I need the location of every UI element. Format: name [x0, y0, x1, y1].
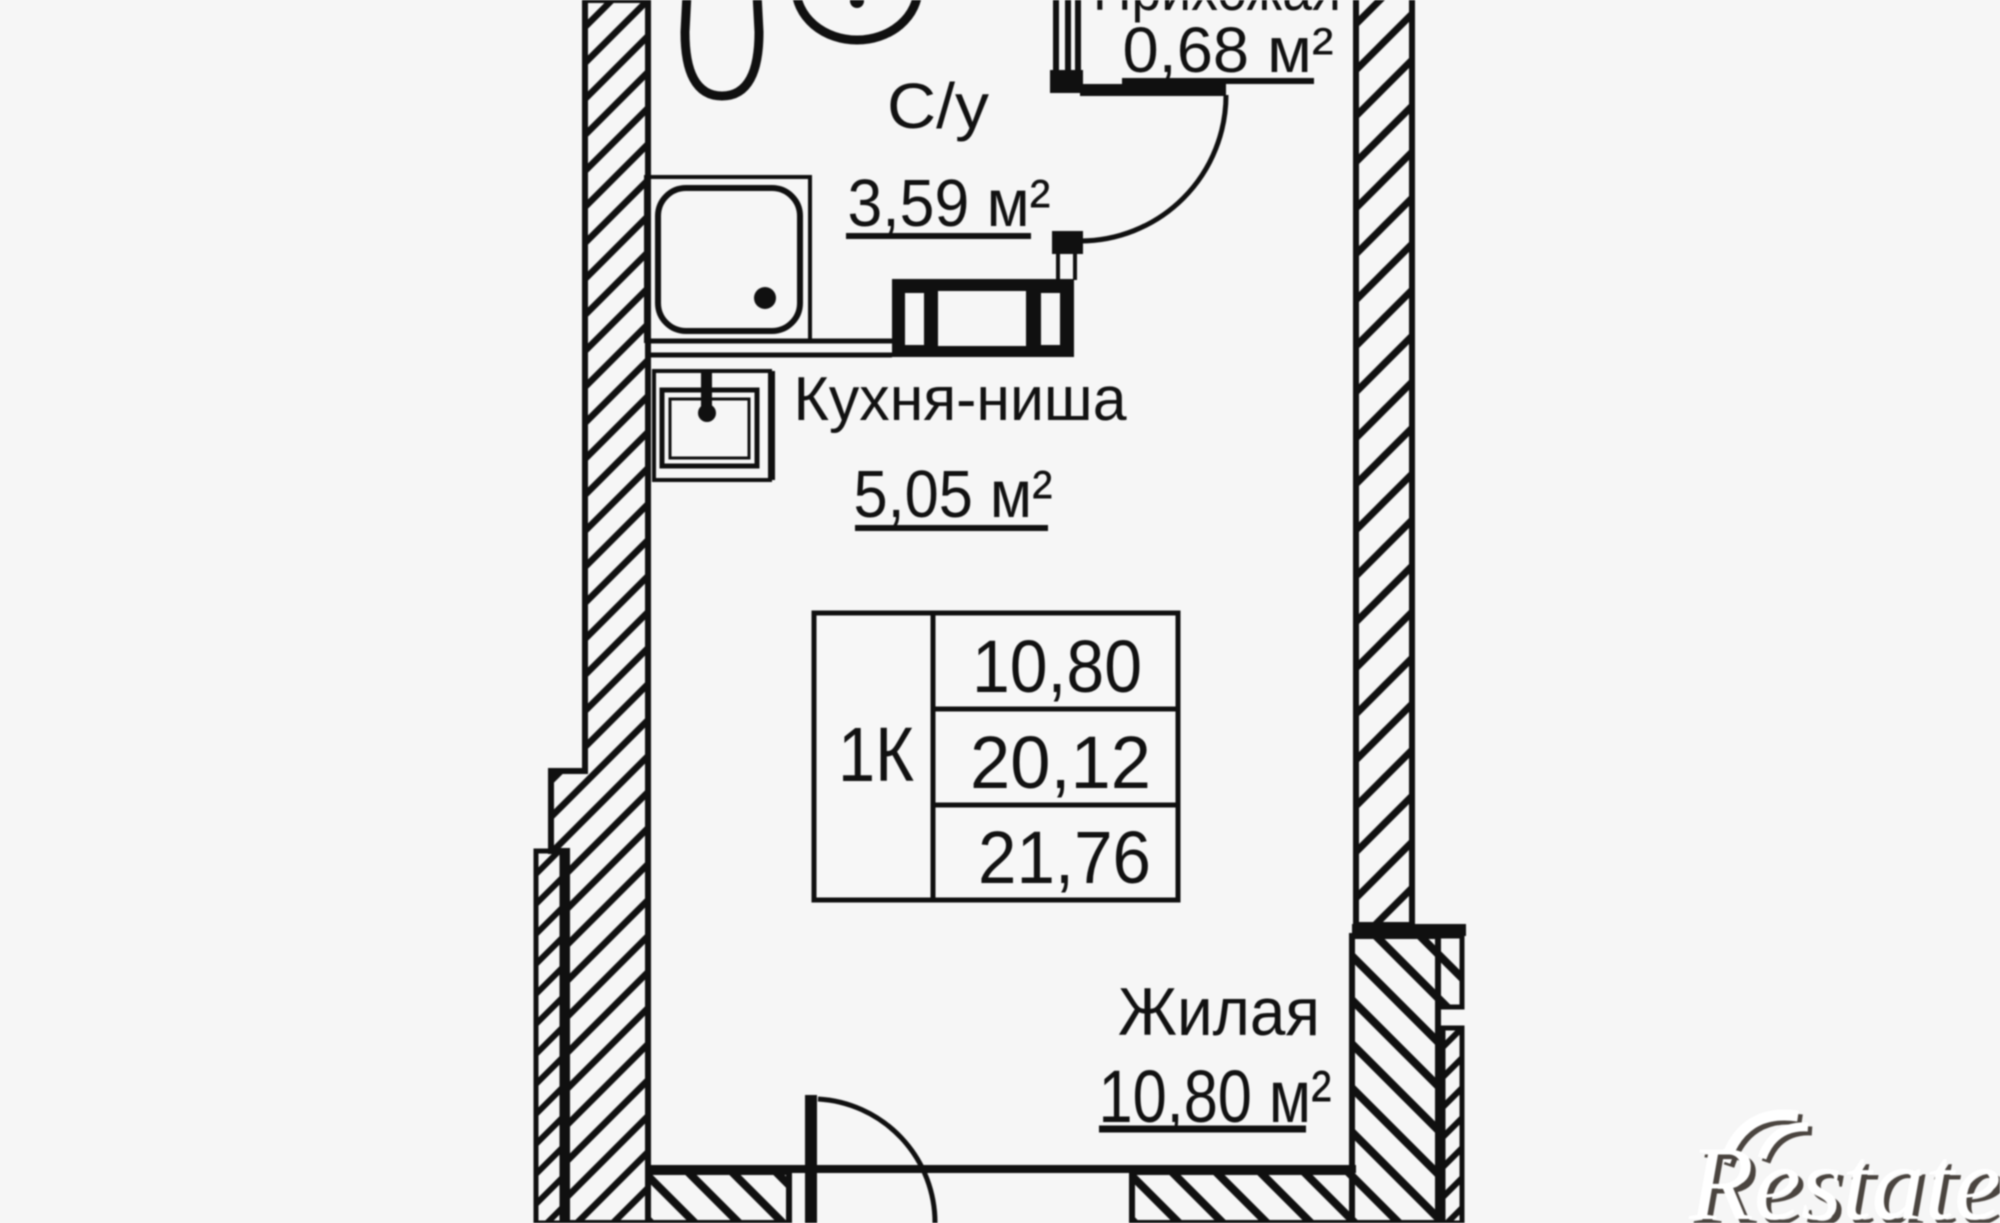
svg-text:5,05 м²: 5,05 м² — [854, 457, 1053, 532]
svg-text:Кухня-ниша: Кухня-ниша — [794, 365, 1128, 434]
svg-text:Жилая: Жилая — [1118, 974, 1320, 1050]
svg-text:0,68 м²: 0,68 м² — [1123, 14, 1334, 86]
svg-text:20,12: 20,12 — [970, 721, 1151, 804]
svg-text:3,59 м²: 3,59 м² — [848, 166, 1051, 241]
svg-text:Restate: Restate — [1688, 1125, 2000, 1223]
svg-text:С/у: С/у — [887, 70, 989, 142]
svg-text:10,80: 10,80 — [972, 625, 1142, 708]
svg-text:21,76: 21,76 — [978, 816, 1151, 899]
svg-text:1К: 1К — [838, 712, 914, 798]
